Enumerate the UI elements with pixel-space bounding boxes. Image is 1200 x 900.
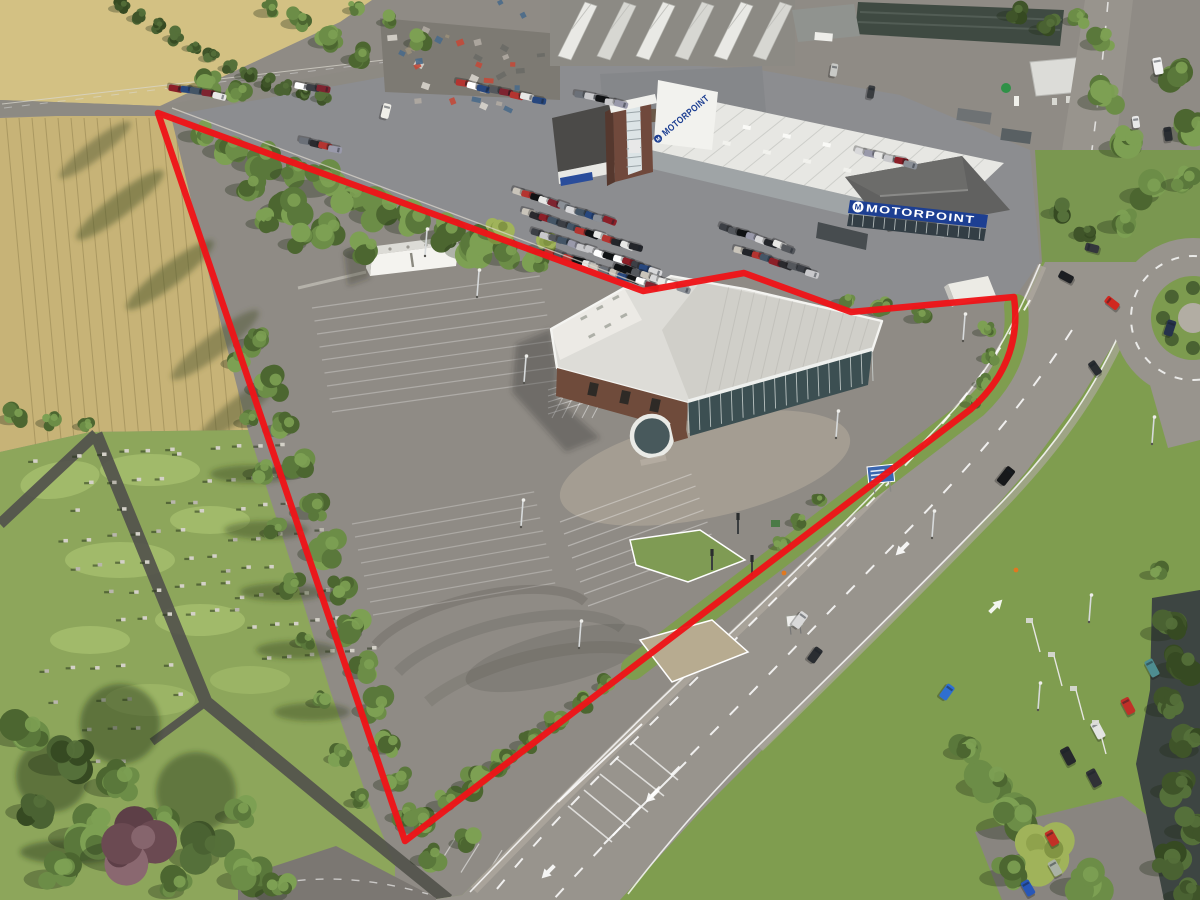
gravestone	[263, 503, 268, 507]
gravestone	[89, 481, 94, 485]
gravestone	[216, 446, 221, 450]
gravestone	[246, 565, 251, 569]
gravestone	[177, 452, 182, 456]
gravestone	[189, 556, 194, 560]
gravestone	[157, 588, 162, 592]
gravestone	[112, 533, 117, 537]
gravestone	[112, 481, 117, 485]
gravestone	[235, 608, 240, 612]
gravestone	[372, 646, 377, 650]
gravestone	[181, 528, 186, 532]
motorpoint-logo-letter: M	[854, 202, 862, 212]
gravestone	[121, 664, 126, 668]
gravestone	[87, 538, 92, 542]
entrance-rotunda	[632, 416, 672, 456]
gravestone	[134, 590, 139, 594]
gravestone	[102, 452, 107, 456]
petrol-sign	[1001, 83, 1011, 93]
small-green-sign	[771, 520, 780, 527]
gravestone	[120, 560, 125, 564]
gravestone	[168, 612, 173, 616]
gravestone	[145, 560, 150, 564]
gravestone	[136, 532, 141, 536]
gravestone	[53, 700, 58, 704]
gravestone	[146, 449, 151, 453]
gravestone	[44, 669, 49, 673]
gravestone	[207, 479, 212, 483]
gravestone	[252, 625, 257, 629]
white-truck	[814, 32, 833, 42]
gravestone	[95, 666, 100, 670]
gravestone	[193, 501, 198, 505]
gravestone	[315, 618, 320, 622]
gravestone	[180, 584, 185, 588]
gravestone	[156, 529, 161, 533]
gravestone	[226, 569, 231, 573]
gravestone	[122, 507, 127, 511]
gravestone	[178, 692, 183, 696]
aerial-photo-canvas: M MOTORPOINT M MOTORPOINT	[0, 0, 1200, 900]
gravestone	[240, 596, 245, 600]
traffic-cone	[1014, 568, 1019, 573]
gravestone	[77, 454, 82, 458]
gravestone	[226, 581, 231, 585]
gravestone	[121, 618, 126, 622]
gravestone	[33, 459, 38, 463]
gravestone	[169, 663, 174, 667]
gravestone	[171, 500, 176, 504]
tower-sign	[629, 140, 640, 153]
gravestone	[160, 477, 165, 481]
gravestone	[191, 612, 196, 616]
gravestone	[215, 608, 220, 612]
gravestone	[75, 508, 80, 512]
aerial-photo: M MOTORPOINT M MOTORPOINT	[0, 0, 1200, 900]
gravestone	[237, 444, 242, 448]
gravestone	[63, 539, 68, 543]
gravestone	[200, 509, 205, 512]
gravestone	[319, 528, 324, 532]
gravestone	[201, 582, 206, 586]
gravestone	[98, 563, 103, 567]
gravestone	[71, 666, 76, 670]
gravestone	[350, 649, 355, 653]
gravestone	[275, 622, 280, 626]
gravestone	[280, 443, 285, 447]
gravestone	[212, 554, 217, 558]
gravestone	[124, 449, 129, 453]
gravestone	[258, 444, 263, 448]
gravestone	[76, 567, 81, 571]
gravestone	[109, 590, 114, 594]
gravestone	[96, 759, 101, 763]
gravestone	[241, 507, 246, 511]
gravestone	[269, 565, 274, 569]
gravestone	[233, 538, 238, 542]
gravestone	[294, 622, 299, 626]
traffic-cone	[782, 571, 787, 576]
gravestone	[142, 616, 147, 620]
gravestone	[137, 478, 142, 482]
gravestone	[170, 448, 175, 452]
